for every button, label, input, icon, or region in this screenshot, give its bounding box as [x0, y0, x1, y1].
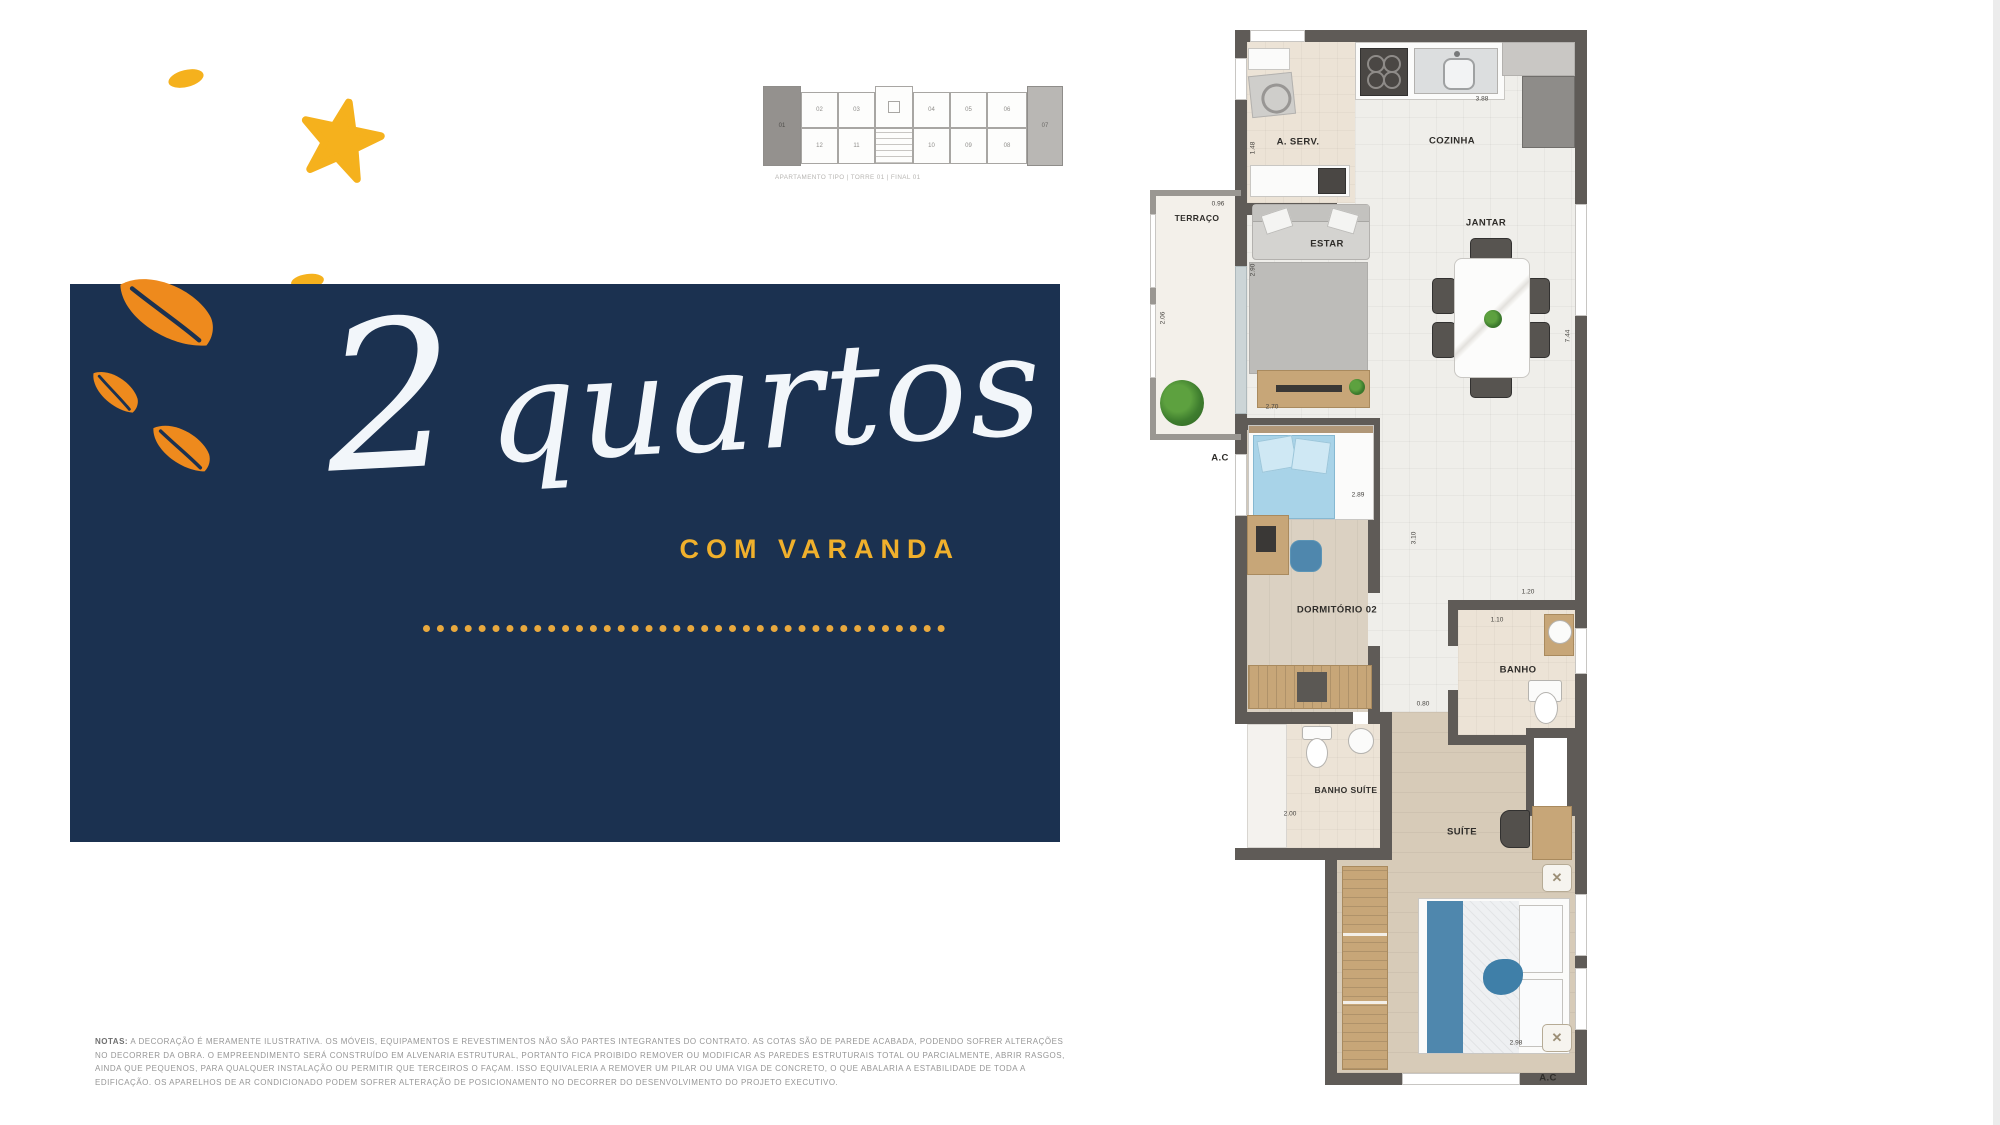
disclaimer-line: NOTAS: A DECORAÇÃO É MERAMENTE ILUSTRATI… — [95, 1035, 1065, 1049]
label-ac-left: A.C — [1211, 453, 1229, 464]
terrace-plant — [1160, 380, 1204, 426]
wall-segment — [1448, 600, 1575, 610]
desk-chair — [1290, 540, 1322, 572]
bed-bedroom2 — [1248, 425, 1374, 520]
key-plan-stairs — [875, 128, 913, 164]
suite-pouf: ✕ — [1542, 864, 1572, 892]
hero-panel: 2 quartos COM VARANDA — [70, 284, 1060, 842]
headline-word: quartos — [483, 316, 1046, 485]
dining-chair — [1432, 322, 1456, 358]
marketing-page: 2 quartos COM VARANDA 01 02 03 04 05 — [0, 0, 2000, 1125]
dotted-divider — [423, 625, 945, 632]
wall-segment — [1380, 712, 1392, 860]
floor-shower — [1247, 724, 1287, 848]
suite-cabinet — [1532, 806, 1572, 860]
shaft-void — [1534, 738, 1567, 806]
dimension-label: 2.98 — [1510, 1040, 1523, 1047]
dimension-label: 2.89 — [1352, 492, 1365, 499]
room-label-servico: A. SERV. — [1277, 137, 1320, 148]
dimension-label: 1.10 — [1491, 617, 1504, 624]
unit-number: 11 — [853, 143, 859, 149]
sink-suite — [1348, 728, 1374, 754]
label-ac-bottom: A.C — [1539, 1073, 1557, 1084]
dimension-label: 2.00 — [1284, 811, 1297, 818]
dimension-label: 3.10 — [1411, 532, 1418, 545]
key-plan-unit: 04 — [913, 92, 950, 128]
wardrobe-suite — [1342, 866, 1388, 1070]
toilet-suite-bowl — [1306, 738, 1328, 768]
key-plan-elevator-core — [875, 86, 913, 128]
unit-number: 09 — [965, 143, 972, 149]
bath-sink — [1548, 620, 1572, 644]
dimension-label: 0.96 — [1212, 201, 1225, 208]
key-plan-caption: APARTAMENTO TIPO | TORRE 01 | FINAL 01 — [775, 174, 921, 181]
terrace-window — [1150, 214, 1156, 288]
wall-segment — [1325, 860, 1337, 1085]
tv-console — [1257, 370, 1370, 408]
room-label-suite: SUÍTE — [1447, 827, 1477, 838]
terrace-wall — [1150, 190, 1241, 196]
key-plan-unit: 10 — [913, 128, 950, 164]
room-label-dormitorio: DORMITÓRIO 02 — [1297, 605, 1377, 616]
suite-armchair — [1500, 810, 1530, 848]
key-plan-unit: 03 — [838, 92, 875, 128]
dimension-label: 7.44 — [1565, 330, 1572, 343]
window — [1402, 1073, 1520, 1085]
dimension-label: 2.70 — [1266, 404, 1279, 411]
key-plan-unit: 06 — [987, 92, 1027, 128]
building-key-plan: 01 02 03 04 05 06 07 12 11 10 09 08 APAR… — [763, 78, 1063, 186]
dimension-label: 2.90 — [1250, 264, 1257, 277]
terrace-wall — [1150, 434, 1241, 440]
window — [1575, 628, 1587, 674]
disclaimer-line: AINDA QUE PEQUENOS, PARA QUALQUER INSTAL… — [95, 1062, 1065, 1076]
deco-dot-top — [166, 66, 205, 91]
wall-segment — [1235, 848, 1392, 860]
dimension-label: 3.88 — [1476, 96, 1489, 103]
key-plan-unit: 08 — [987, 128, 1027, 164]
living-rug — [1249, 262, 1368, 374]
key-plan-unit-01-highlight: 01 — [763, 86, 801, 166]
suite-pouf: ✕ — [1542, 1024, 1572, 1052]
floor-plan: ✕ ✕ A. SERV. COZINHA JANTAR TERRAÇO ESTA… — [1150, 18, 1595, 1093]
key-plan-unit-07: 07 — [1027, 86, 1063, 166]
disclaimer-line: NO DECORRER DA OBRA. O EMPREENDIMENTO SE… — [95, 1049, 1065, 1063]
window — [1235, 454, 1247, 516]
unit-number: 12 — [816, 143, 823, 149]
unit-number: 06 — [1004, 107, 1011, 113]
disclaimer-line: EDIFICAÇÃO. OS APARELHOS DE AR CONDICION… — [95, 1076, 1065, 1090]
dimension-label: 1.20 — [1522, 589, 1535, 596]
page-edge — [1993, 0, 2000, 1125]
room-label-jantar: JANTAR — [1466, 218, 1506, 229]
room-label-terraco: TERRAÇO — [1175, 213, 1220, 223]
washing-machine — [1248, 72, 1296, 118]
dimension-label: 0.80 — [1417, 701, 1430, 708]
wall-segment — [1448, 600, 1458, 646]
unit-number: 02 — [816, 107, 823, 113]
room-label-banho: BANHO — [1500, 665, 1537, 676]
key-plan-unit: 02 — [801, 92, 838, 128]
unit-number: 01 — [779, 123, 786, 129]
desk — [1247, 515, 1289, 575]
disclaimer-label: NOTAS: — [95, 1037, 128, 1046]
window — [1575, 204, 1587, 316]
key-plan-unit: 11 — [838, 128, 875, 164]
window — [1235, 58, 1247, 100]
room-label-estar: ESTAR — [1310, 239, 1344, 250]
star-icon — [290, 90, 391, 188]
terrace-window — [1150, 304, 1156, 378]
sofa — [1252, 204, 1370, 260]
wardrobe-bedroom2 — [1248, 665, 1372, 709]
legal-disclaimer: NOTAS: A DECORAÇÃO É MERAMENTE ILUSTRATI… — [95, 1035, 1065, 1089]
window — [1575, 968, 1587, 1030]
laundry-tank — [1248, 48, 1290, 70]
sliding-glass-door — [1235, 266, 1247, 414]
unit-number: 10 — [928, 143, 935, 149]
room-label-cozinha: COZINHA — [1429, 136, 1475, 147]
unit-number: 08 — [1004, 143, 1011, 149]
toilet-bowl — [1534, 692, 1558, 724]
unit-number: 05 — [965, 107, 972, 113]
window — [1250, 30, 1305, 42]
unit-number: 03 — [853, 107, 860, 113]
refrigerator — [1522, 76, 1575, 148]
kitchen-sink — [1414, 48, 1498, 94]
unit-number: 07 — [1042, 123, 1049, 129]
dining-table — [1454, 258, 1530, 378]
dining-chair — [1432, 278, 1456, 314]
dimension-label: 1.48 — [1250, 142, 1257, 155]
window — [1575, 894, 1587, 956]
key-plan-unit: 09 — [950, 128, 987, 164]
stove — [1360, 48, 1408, 96]
disclaimer-text: A DECORAÇÃO É MERAMENTE ILUSTRATIVA. OS … — [130, 1037, 1063, 1046]
key-plan-unit: 12 — [801, 128, 838, 164]
dimension-label: 2.06 — [1160, 312, 1167, 325]
room-label-banho-suite: BANHO SUÍTE — [1315, 785, 1378, 795]
headline-subtitle: COM VARANDA — [630, 534, 960, 565]
wall-segment — [1235, 712, 1353, 724]
unit-number: 04 — [928, 107, 935, 113]
headline-script: 2 quartos — [320, 261, 1047, 503]
kitchen-cabinet — [1502, 42, 1575, 76]
headline-number: 2 — [320, 292, 461, 504]
key-plan-unit: 05 — [950, 92, 987, 128]
service-appliance — [1318, 168, 1346, 194]
